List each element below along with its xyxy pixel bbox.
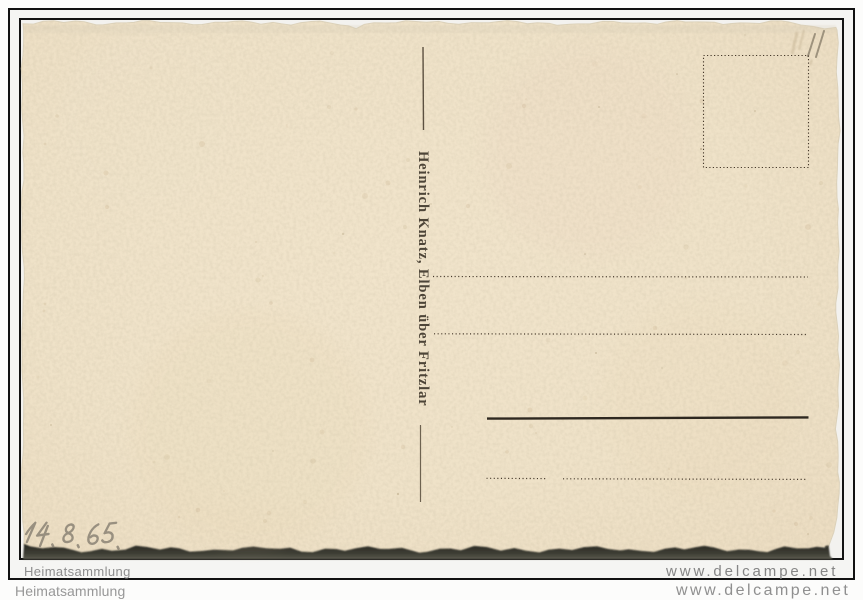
svg-text:Heinrich Knatz, Elben über Fri: Heinrich Knatz, Elben über Fritzlar bbox=[415, 151, 431, 407]
